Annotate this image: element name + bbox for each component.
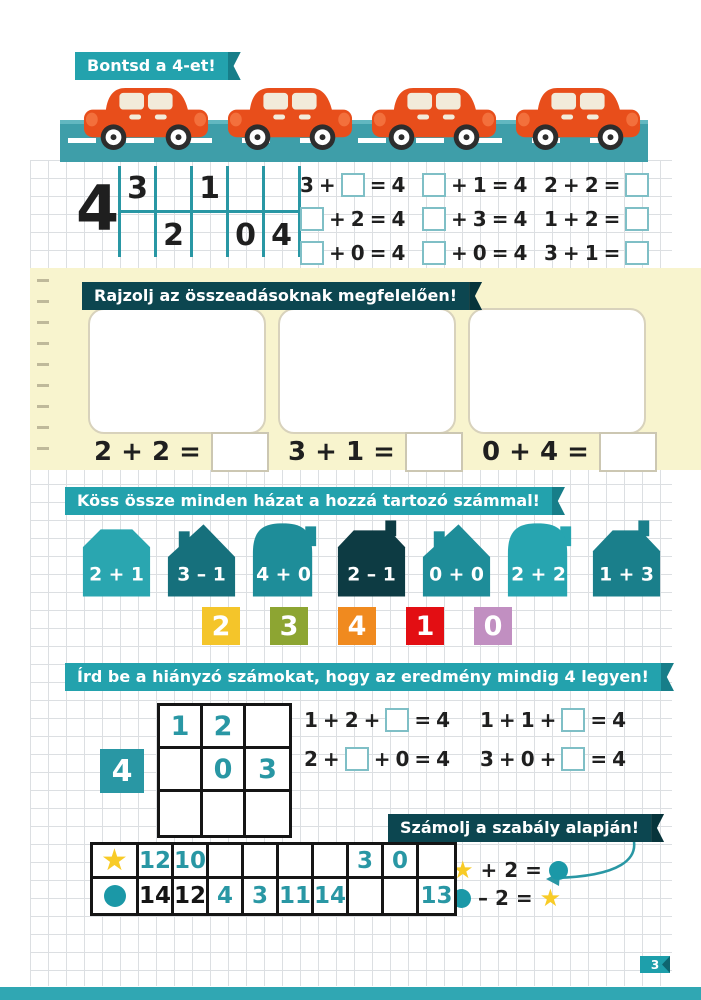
page-number-flag: 3 xyxy=(640,956,670,973)
rule-lines: ★+ 2 =– 2 =★ xyxy=(452,858,568,910)
number-tile: 2 xyxy=(202,607,240,645)
number-tiles: 23410 xyxy=(202,607,512,645)
decomposition-cell: 3 xyxy=(118,166,154,210)
equation: 2+2= xyxy=(544,168,652,202)
equation-token: + xyxy=(329,207,346,231)
drawing-problem: 2 + 2 = xyxy=(94,432,269,472)
drawing-box xyxy=(278,308,456,434)
equation-token: + xyxy=(323,708,340,732)
star-icon: ★ xyxy=(540,888,562,908)
equation-token: = xyxy=(414,747,431,771)
cars-row xyxy=(82,82,642,153)
equation: 2++0=4 xyxy=(304,747,450,771)
equation-token: + xyxy=(540,708,557,732)
grid-cell xyxy=(203,792,246,835)
equation-token: = xyxy=(604,173,621,197)
answer-box xyxy=(422,207,446,231)
equation: 1+2= xyxy=(544,202,652,236)
missing-equations-right: 1+1+=43+0+=4 xyxy=(480,708,626,771)
star-icon: ★ xyxy=(101,848,128,874)
grid-cell: 1 xyxy=(160,706,203,749)
equation-token: 4 xyxy=(436,747,450,771)
equation-token: 2 xyxy=(544,173,558,197)
house-label: 1 + 3 xyxy=(599,565,654,586)
equation: +2=4 xyxy=(300,202,422,236)
number-tile: 0 xyxy=(474,607,512,645)
decomposition-cell: 0 xyxy=(226,213,262,257)
equation-token: 2 xyxy=(345,708,359,732)
equation-token: 0 xyxy=(395,747,409,771)
equation-token: + xyxy=(319,173,336,197)
equation-token: + xyxy=(563,241,580,265)
house-label: 4 + 0 xyxy=(256,565,311,586)
sequence-table: ★121030141243111413 xyxy=(90,842,457,916)
table-cell xyxy=(314,845,349,879)
equation-token: 1 xyxy=(521,708,535,732)
equation-token: = xyxy=(414,708,431,732)
banner-label: Számolj a szabály alapján! xyxy=(400,818,639,837)
house: 2 + 2 xyxy=(501,517,582,597)
rule-line: – 2 =★ xyxy=(452,886,568,910)
equation-token: 4 xyxy=(612,747,626,771)
table-cell: 3 xyxy=(244,879,279,913)
grid-cell xyxy=(160,749,203,792)
flag-notch-icon xyxy=(662,956,670,973)
answer-box xyxy=(561,708,585,732)
number-tile: 3 xyxy=(270,607,308,645)
table-cell: 0 xyxy=(384,845,419,879)
equation-token: + xyxy=(374,747,391,771)
equation-token: + xyxy=(563,173,580,197)
house: 3 – 1 xyxy=(161,517,242,597)
answer-box xyxy=(345,747,369,771)
decomposition-cell xyxy=(154,166,190,210)
decomposition-table: 31 204 xyxy=(118,166,301,257)
answer-box xyxy=(625,173,649,197)
answer-box xyxy=(341,173,365,197)
answer-box xyxy=(211,432,269,472)
equation-token: 4 xyxy=(612,708,626,732)
table-cell xyxy=(279,845,314,879)
equation-token: 1 xyxy=(304,708,318,732)
equation-token: + xyxy=(499,747,516,771)
torn-edge-icon xyxy=(37,274,49,464)
equation-token: 4 xyxy=(436,708,450,732)
equation-token: = xyxy=(604,241,621,265)
equation-token: = xyxy=(370,173,387,197)
drawing-box xyxy=(88,308,266,434)
missing-equations-left: 1+2+=42++0=4 xyxy=(304,708,450,771)
house: 2 – 1 xyxy=(331,517,412,597)
number-tile: 4 xyxy=(338,607,376,645)
table-cell: 12 xyxy=(139,845,174,879)
drawing-note-section: Rajzolj az összeadásoknak megfelelően! 2… xyxy=(30,268,701,470)
decomposition-cell: 1 xyxy=(190,166,226,210)
answer-box xyxy=(300,207,324,231)
decomposition-cell xyxy=(118,213,154,257)
equation-token: 1 xyxy=(544,207,558,231)
grid-cell: 3 xyxy=(246,749,289,792)
equation-token: 3 xyxy=(544,241,558,265)
equation-token: = xyxy=(492,173,509,197)
house: 4 + 0 xyxy=(246,517,327,597)
answer-box xyxy=(405,432,463,472)
circle-icon xyxy=(104,885,126,907)
equation: 3+1= xyxy=(544,236,652,270)
table-cell: 12 xyxy=(174,879,209,913)
equation-token: + xyxy=(451,241,468,265)
table-cell: 13 xyxy=(419,879,454,913)
answer-box xyxy=(625,241,649,265)
rule-operation: + 2 = xyxy=(481,858,542,882)
car-icon xyxy=(514,82,642,153)
equation-token: 4 xyxy=(391,207,405,231)
drawing-problem: 0 + 4 = xyxy=(482,432,657,472)
equation-token: = xyxy=(492,241,509,265)
section-banner-decompose: Bontsd a 4-et! xyxy=(75,52,228,80)
equation-token: 2 xyxy=(585,173,599,197)
number-tile: 1 xyxy=(406,607,444,645)
house-label: 0 + 0 xyxy=(429,565,484,586)
equation: +1=4 xyxy=(422,168,544,202)
equation-token: 3 + 1 = xyxy=(288,437,395,467)
house: 0 + 0 xyxy=(416,517,497,597)
equation-token: + xyxy=(563,207,580,231)
decomposition-cell xyxy=(262,166,301,210)
equation-token: 2 + 2 = xyxy=(94,437,201,467)
drawing-box xyxy=(468,308,646,434)
banner-label: Írd be a hiányzó számokat, hogy az eredm… xyxy=(77,667,649,686)
equation-token: 3 xyxy=(480,747,494,771)
section-banner-houses: Köss össze minden házat a hozzá tartozó … xyxy=(65,487,552,515)
equation-token: 0 xyxy=(473,241,487,265)
equation-token: 2 xyxy=(585,207,599,231)
next-page-edge xyxy=(0,987,701,1000)
ribbon-tail xyxy=(469,282,482,310)
table-cell: 11 xyxy=(279,879,314,913)
equation: +0=4 xyxy=(300,236,422,270)
equation-token: + xyxy=(364,708,381,732)
equation-token: = xyxy=(370,241,387,265)
decomposition-bottom-row: 204 xyxy=(118,213,301,257)
equation-token: 0 xyxy=(521,747,535,771)
section-banner-rule: Számolj a szabály alapján! xyxy=(388,814,651,842)
equation-token: 3 xyxy=(300,173,314,197)
total-tile: 4 xyxy=(100,749,144,793)
row-header-cell: ★ xyxy=(93,845,139,879)
table-cell xyxy=(244,845,279,879)
table-cell: 4 xyxy=(209,879,244,913)
equation-token: 4 xyxy=(513,173,527,197)
answer-box xyxy=(422,173,446,197)
equation-token: + xyxy=(329,241,346,265)
decomposition-cell xyxy=(226,166,262,210)
table-cell xyxy=(209,845,244,879)
answer-box xyxy=(422,241,446,265)
equation-token: = xyxy=(590,708,607,732)
banner-label: Rajzolj az összeadásoknak megfelelően! xyxy=(94,286,457,305)
rule-line: ★+ 2 = xyxy=(452,858,568,882)
missing-number-grid: 1203 xyxy=(157,703,292,838)
table-cell xyxy=(349,879,384,913)
table-cell: 3 xyxy=(349,845,384,879)
equation-token: 3 xyxy=(473,207,487,231)
ribbon-tail xyxy=(228,52,241,80)
house-label: 2 + 2 xyxy=(511,565,566,586)
equation-token: 4 xyxy=(513,207,527,231)
grid-cell xyxy=(160,792,203,835)
car-icon xyxy=(370,82,498,153)
equation-token: 2 xyxy=(351,207,365,231)
section-banner-missing: Írd be a hiányzó számokat, hogy az eredm… xyxy=(65,663,661,691)
equation: +0=4 xyxy=(422,236,544,270)
banner-label: Bontsd a 4-et! xyxy=(87,56,216,75)
equation-token: 1 xyxy=(585,241,599,265)
grid-cell xyxy=(246,706,289,749)
decomposition-top-row: 31 xyxy=(118,166,301,213)
equation: 3+0+=4 xyxy=(480,747,626,771)
answer-box xyxy=(561,747,585,771)
equation-token: = xyxy=(492,207,509,231)
equation-token: 1 xyxy=(480,708,494,732)
equation-token: 2 xyxy=(304,747,318,771)
house-label: 2 – 1 xyxy=(347,565,396,586)
workbook-page: Bontsd a 4-et! 4 31 204 3+=4+1=42 xyxy=(0,0,701,1000)
table-cell: 10 xyxy=(174,845,209,879)
house-label: 3 – 1 xyxy=(177,565,226,586)
car-icon xyxy=(82,82,210,153)
grid-cell: 2 xyxy=(203,706,246,749)
answer-box xyxy=(599,432,657,472)
equation: +3=4 xyxy=(422,202,544,236)
equation-token: 4 xyxy=(513,241,527,265)
table-cell: 14 xyxy=(139,879,174,913)
total-value: 4 xyxy=(112,754,133,789)
equation-token: + xyxy=(540,747,557,771)
answer-box xyxy=(300,241,324,265)
table-cell xyxy=(384,879,419,913)
grid-cell xyxy=(246,792,289,835)
equation-token: = xyxy=(370,207,387,231)
decomposition-cell: 4 xyxy=(262,213,301,257)
car-icon xyxy=(226,82,354,153)
drawing-problem: 3 + 1 = xyxy=(288,432,463,472)
equation-token: + xyxy=(499,708,516,732)
table-cell xyxy=(419,845,454,879)
circle-icon xyxy=(549,861,568,880)
equation: 1+2+=4 xyxy=(304,708,450,732)
equation-token: 4 xyxy=(391,173,405,197)
section-banner-draw: Rajzolj az összeadásoknak megfelelően! xyxy=(82,282,469,310)
equation: 3+=4 xyxy=(300,168,422,202)
answer-box xyxy=(625,207,649,231)
equation-token: = xyxy=(604,207,621,231)
equation-token: + xyxy=(451,207,468,231)
equation-token: 4 xyxy=(391,241,405,265)
equation-token: 1 xyxy=(473,173,487,197)
house: 2 + 1 xyxy=(76,517,157,597)
addition-exercises: 3+=4+1=42+2=+2=4+3=41+2=+0=4+0=43+1= xyxy=(300,168,652,270)
equation-token: 0 + 4 = xyxy=(482,437,589,467)
row-header-cell xyxy=(93,879,139,913)
table-cell: 14 xyxy=(314,879,349,913)
equation-token: = xyxy=(590,747,607,771)
banner-label: Köss össze minden házat a hozzá tartozó … xyxy=(77,491,540,510)
page-number: 3 xyxy=(651,958,659,972)
equation-token: + xyxy=(323,747,340,771)
house-label: 2 + 1 xyxy=(89,565,144,586)
houses-row: 2 + 1 3 – 1 4 + 0 2 – 1 0 + 0 2 + 2 1 + … xyxy=(76,517,667,597)
equation-token: 0 xyxy=(351,241,365,265)
decomposition-cell: 2 xyxy=(154,213,190,257)
answer-box xyxy=(385,708,409,732)
decomposition-cell xyxy=(190,213,226,257)
grid-cell: 0 xyxy=(203,749,246,792)
house: 1 + 3 xyxy=(586,517,667,597)
rule-operation: – 2 = xyxy=(478,886,533,910)
equation: 1+1+=4 xyxy=(480,708,626,732)
equation-token: + xyxy=(451,173,468,197)
decomposition-total: 4 xyxy=(76,172,119,245)
